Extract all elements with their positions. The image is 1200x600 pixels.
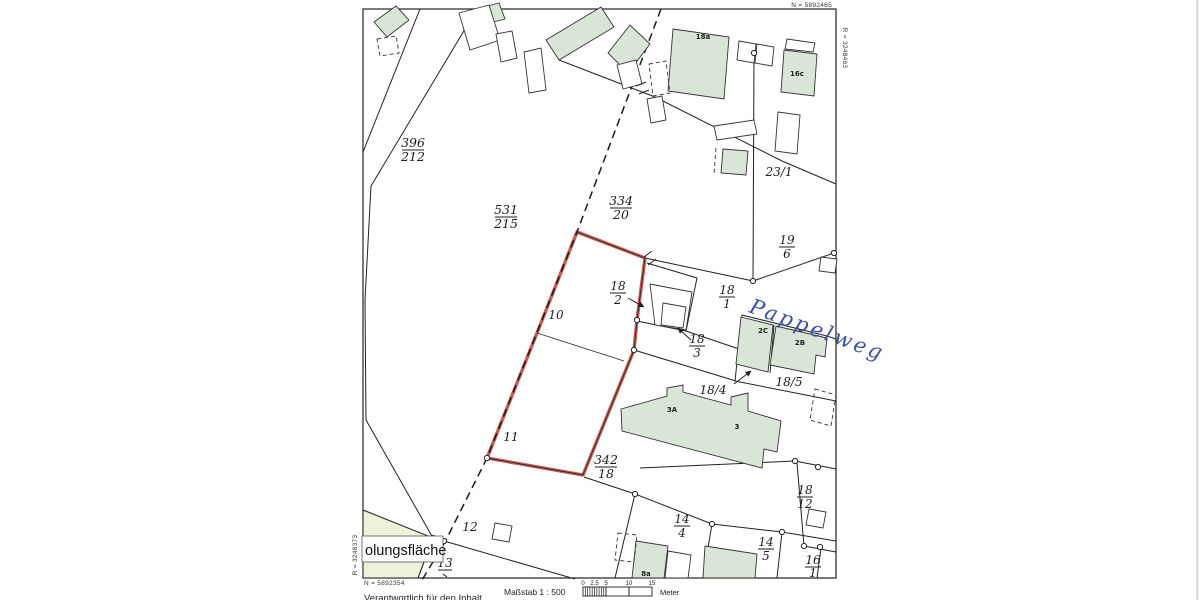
building-label-8a: 8a xyxy=(641,570,651,578)
scale-tick-2-5: 2.5 xyxy=(590,581,599,587)
denominator: 18 xyxy=(598,466,614,481)
building-label-3: 3 xyxy=(735,423,740,431)
parcel-label-23-1: 23/1 xyxy=(765,165,793,179)
scan-edge xyxy=(1196,0,1199,600)
parcel-label-531-215: 531 215 xyxy=(493,202,518,231)
numerator: 18 xyxy=(689,332,705,346)
responsible-note: Verantwortlich für den Inhalt xyxy=(364,593,482,600)
building-label-3a: 3A xyxy=(667,406,678,414)
parcel-label-11: 11 xyxy=(503,430,518,444)
parcel-label-18-12: 18 12 xyxy=(797,483,813,511)
numerator: 19 xyxy=(779,233,795,247)
map-footer: Maßstab 1 : 500 0 2.5 5 10 15 Meter xyxy=(364,581,680,600)
scale-tick-15: 15 xyxy=(649,581,656,587)
parcel-label-10: 10 xyxy=(548,308,564,322)
parcel-label-18-4: 18/4 xyxy=(700,383,727,397)
coord-top-right-n: N = 5892465 xyxy=(791,2,832,9)
denominator: 3 xyxy=(693,346,701,360)
denominator: 212 xyxy=(400,149,425,164)
building-label-2c: 2C xyxy=(758,327,768,335)
numerator: 334 xyxy=(609,193,633,208)
numerator: 18 xyxy=(719,283,735,297)
coord-bottom-left-n: N = 5892354 xyxy=(364,580,405,587)
numerator: 14 xyxy=(674,512,689,526)
scale-bar: 0 2.5 5 10 15 Meter xyxy=(581,581,679,597)
denominator: 20 xyxy=(612,207,629,222)
scale-label: Maßstab 1 : 500 xyxy=(504,587,566,597)
denominator: 2 xyxy=(613,293,622,307)
numerator: 18 xyxy=(797,483,813,497)
scale-tick-5: 5 xyxy=(604,581,608,587)
building-label-16c: 16c xyxy=(790,70,804,78)
scale-unit-label: Meter xyxy=(660,588,680,597)
denominator: 1 xyxy=(723,297,731,311)
parcel-label-18-5: 18/5 xyxy=(776,375,803,389)
denominator: 4 xyxy=(677,526,686,540)
building-label-2b: 2B xyxy=(795,339,805,347)
numerator: 16 xyxy=(805,553,821,567)
map-frame xyxy=(363,9,836,578)
parcel-label-396-212: 396 212 xyxy=(400,135,425,164)
numerator: 396 xyxy=(401,135,425,150)
denominator: 5 xyxy=(762,549,770,563)
numerator: 14 xyxy=(758,535,773,549)
numerator: 18 xyxy=(610,279,626,293)
scale-tick-0: 0 xyxy=(581,581,585,587)
area-label-box: olungsfläche xyxy=(362,536,446,562)
denominator: 6 xyxy=(783,247,791,261)
scale-tick-10: 10 xyxy=(626,581,633,587)
building-label-18a: 18a xyxy=(696,33,711,41)
denominator: 1 xyxy=(809,566,817,580)
scanned-cadastral-map: 396 212 531 215 334 20 19 6 18 2 18 1 xyxy=(0,0,1200,600)
area-label-text: olungsfläche xyxy=(365,543,446,559)
coord-left-edge-r: R = 3248373 xyxy=(352,535,359,576)
coord-right-edge-r: R = 3248463 xyxy=(841,28,848,69)
denominator: 215 xyxy=(493,216,518,231)
cadastral-map-canvas: 396 212 531 215 334 20 19 6 18 2 18 1 xyxy=(0,0,1200,600)
numerator: 531 xyxy=(494,202,518,217)
denominator: 12 xyxy=(797,497,812,511)
numerator: 342 xyxy=(594,452,618,467)
parcel-label-12: 12 xyxy=(462,520,477,534)
